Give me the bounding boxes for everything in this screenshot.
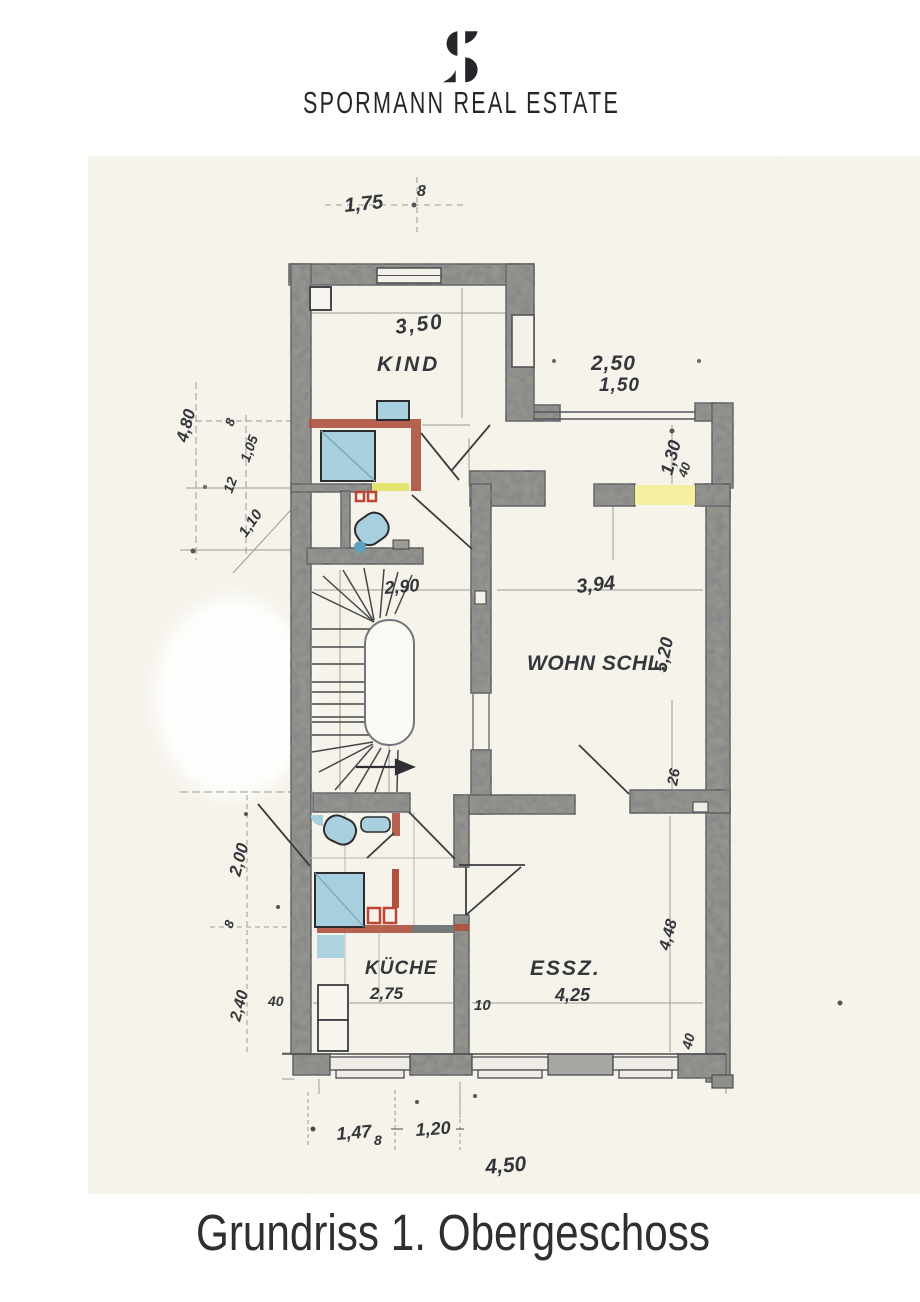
svg-text:26: 26 <box>664 767 684 788</box>
svg-text:40: 40 <box>267 993 284 1009</box>
svg-text:2,75: 2,75 <box>369 984 404 1003</box>
svg-text:ESSZ.: ESSZ. <box>530 957 601 980</box>
svg-text:8: 8 <box>417 183 426 200</box>
svg-text:10: 10 <box>474 997 491 1014</box>
svg-text:2,90: 2,90 <box>383 575 421 598</box>
svg-text:KÜCHE: KÜCHE <box>365 958 438 979</box>
svg-text:WOHN SCHL.: WOHN SCHL. <box>527 652 667 675</box>
svg-text:KIND: KIND <box>377 353 440 376</box>
svg-text:4,50: 4,50 <box>483 1152 527 1179</box>
svg-text:4,25: 4,25 <box>554 985 591 1005</box>
svg-text:1,50: 1,50 <box>599 375 640 396</box>
svg-text:1,75: 1,75 <box>343 191 385 217</box>
svg-text:3,94: 3,94 <box>575 572 616 598</box>
svg-text:2,50: 2,50 <box>590 352 636 375</box>
svg-text:1,20: 1,20 <box>415 1118 451 1140</box>
svg-text:8: 8 <box>374 1132 382 1148</box>
svg-text:1,47: 1,47 <box>336 1121 374 1144</box>
